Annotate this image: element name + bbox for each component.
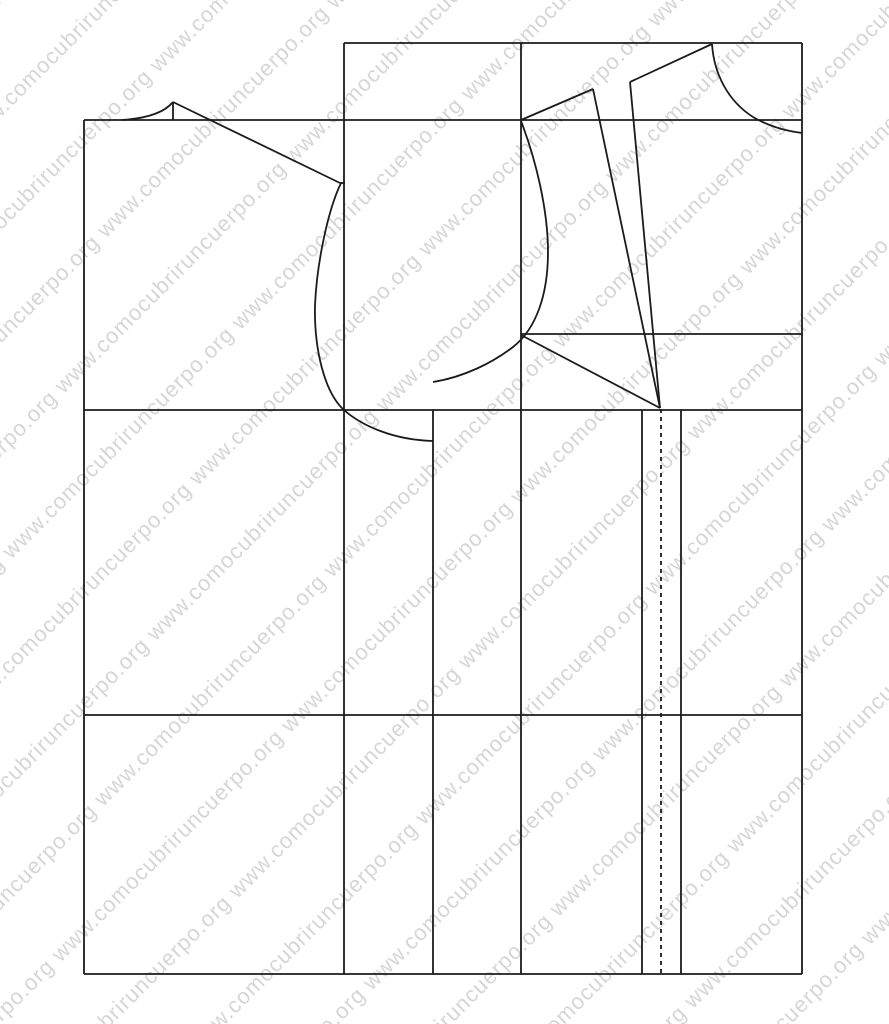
front-shoulder-line xyxy=(173,102,340,183)
front-neckline-curve xyxy=(122,102,173,120)
shoulder-dart-leg-a xyxy=(630,82,660,408)
bodice-pattern-diagram xyxy=(0,0,889,1024)
shoulder-pivot-line xyxy=(521,89,593,120)
back-shoulder-line xyxy=(630,44,712,82)
waist-dart-diagonal xyxy=(521,335,660,408)
shoulder-dart-leg-b xyxy=(593,89,660,408)
pattern-sheet: www.comocubriruncuerpo.org www.comocubri… xyxy=(0,0,889,1024)
back-armhole-curve xyxy=(433,121,548,382)
front-armhole-curve xyxy=(315,183,433,441)
